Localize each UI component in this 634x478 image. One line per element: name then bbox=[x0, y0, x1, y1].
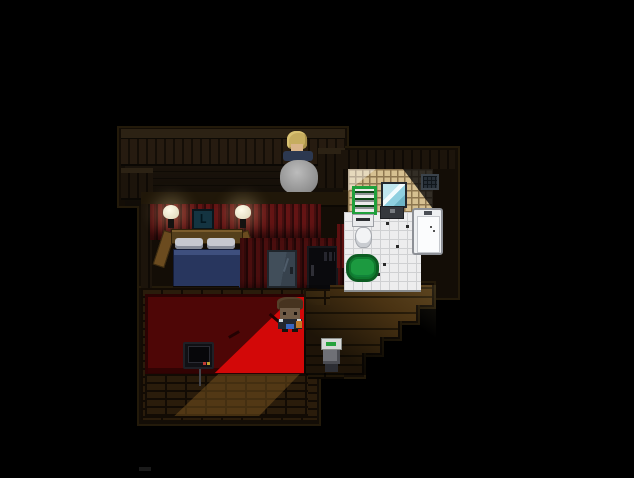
floor-speck bbox=[406, 225, 409, 228]
tub-speck bbox=[433, 230, 435, 232]
floor-device[interactable] bbox=[321, 338, 343, 372]
device-stand bbox=[325, 364, 338, 372]
device-base bbox=[323, 350, 340, 364]
floor-speck bbox=[396, 245, 399, 248]
npc-face bbox=[291, 144, 303, 151]
carpet-crease bbox=[228, 330, 240, 339]
bottom-bricks-light-band bbox=[145, 374, 308, 416]
tv-cable bbox=[199, 369, 201, 386]
toilet-tank-slit bbox=[356, 218, 370, 221]
clock-hands-glyph: L bbox=[199, 212, 206, 226]
sink[interactable] bbox=[380, 206, 404, 219]
toilet-bowl bbox=[355, 227, 372, 248]
player-foot-left bbox=[282, 329, 288, 332]
lamp-globe bbox=[235, 205, 251, 219]
round-table[interactable] bbox=[280, 160, 318, 195]
tub-faucet bbox=[424, 211, 432, 215]
player-foot-right bbox=[292, 329, 298, 332]
player-body bbox=[278, 319, 302, 329]
tub-inner bbox=[417, 216, 440, 253]
game-viewport[interactable]: L bbox=[0, 0, 634, 478]
player-character[interactable] bbox=[277, 295, 303, 332]
player-eye-left bbox=[283, 312, 286, 315]
tv-screen bbox=[188, 346, 210, 363]
vent bbox=[421, 174, 439, 190]
window-handle bbox=[290, 267, 293, 274]
sink-faucet bbox=[390, 209, 395, 213]
toilet[interactable] bbox=[352, 214, 376, 250]
window[interactable] bbox=[267, 250, 297, 288]
window-streak bbox=[283, 258, 289, 272]
screen-artifact bbox=[139, 467, 151, 471]
bottom-bricks bbox=[145, 374, 308, 416]
player-eye-right bbox=[294, 312, 297, 315]
bed-pillow-left bbox=[175, 238, 203, 249]
tv[interactable] bbox=[183, 342, 214, 369]
mirror[interactable] bbox=[381, 182, 407, 208]
floor-speck bbox=[386, 222, 389, 225]
bed-pillow-right bbox=[207, 238, 235, 249]
bathroom-top-wood bbox=[341, 150, 455, 169]
device-green-stripe bbox=[326, 342, 336, 346]
tv-button-yellow bbox=[207, 362, 210, 365]
toilet-tank bbox=[352, 214, 374, 227]
player-face bbox=[280, 308, 300, 319]
player-orange-pack bbox=[296, 321, 302, 328]
player-shoulder-left bbox=[279, 319, 283, 322]
lamp-globe bbox=[163, 205, 179, 219]
towel-shelf[interactable] bbox=[352, 186, 377, 215]
device-top bbox=[321, 338, 342, 350]
floor-speck bbox=[383, 263, 386, 266]
door-handle bbox=[311, 265, 314, 276]
tv-button-red bbox=[203, 362, 206, 365]
bathtub[interactable] bbox=[412, 208, 443, 255]
tub-speck bbox=[430, 226, 432, 228]
bed-blanket bbox=[173, 249, 241, 288]
door-vent-slits bbox=[324, 252, 335, 261]
bath-rug bbox=[346, 254, 379, 282]
